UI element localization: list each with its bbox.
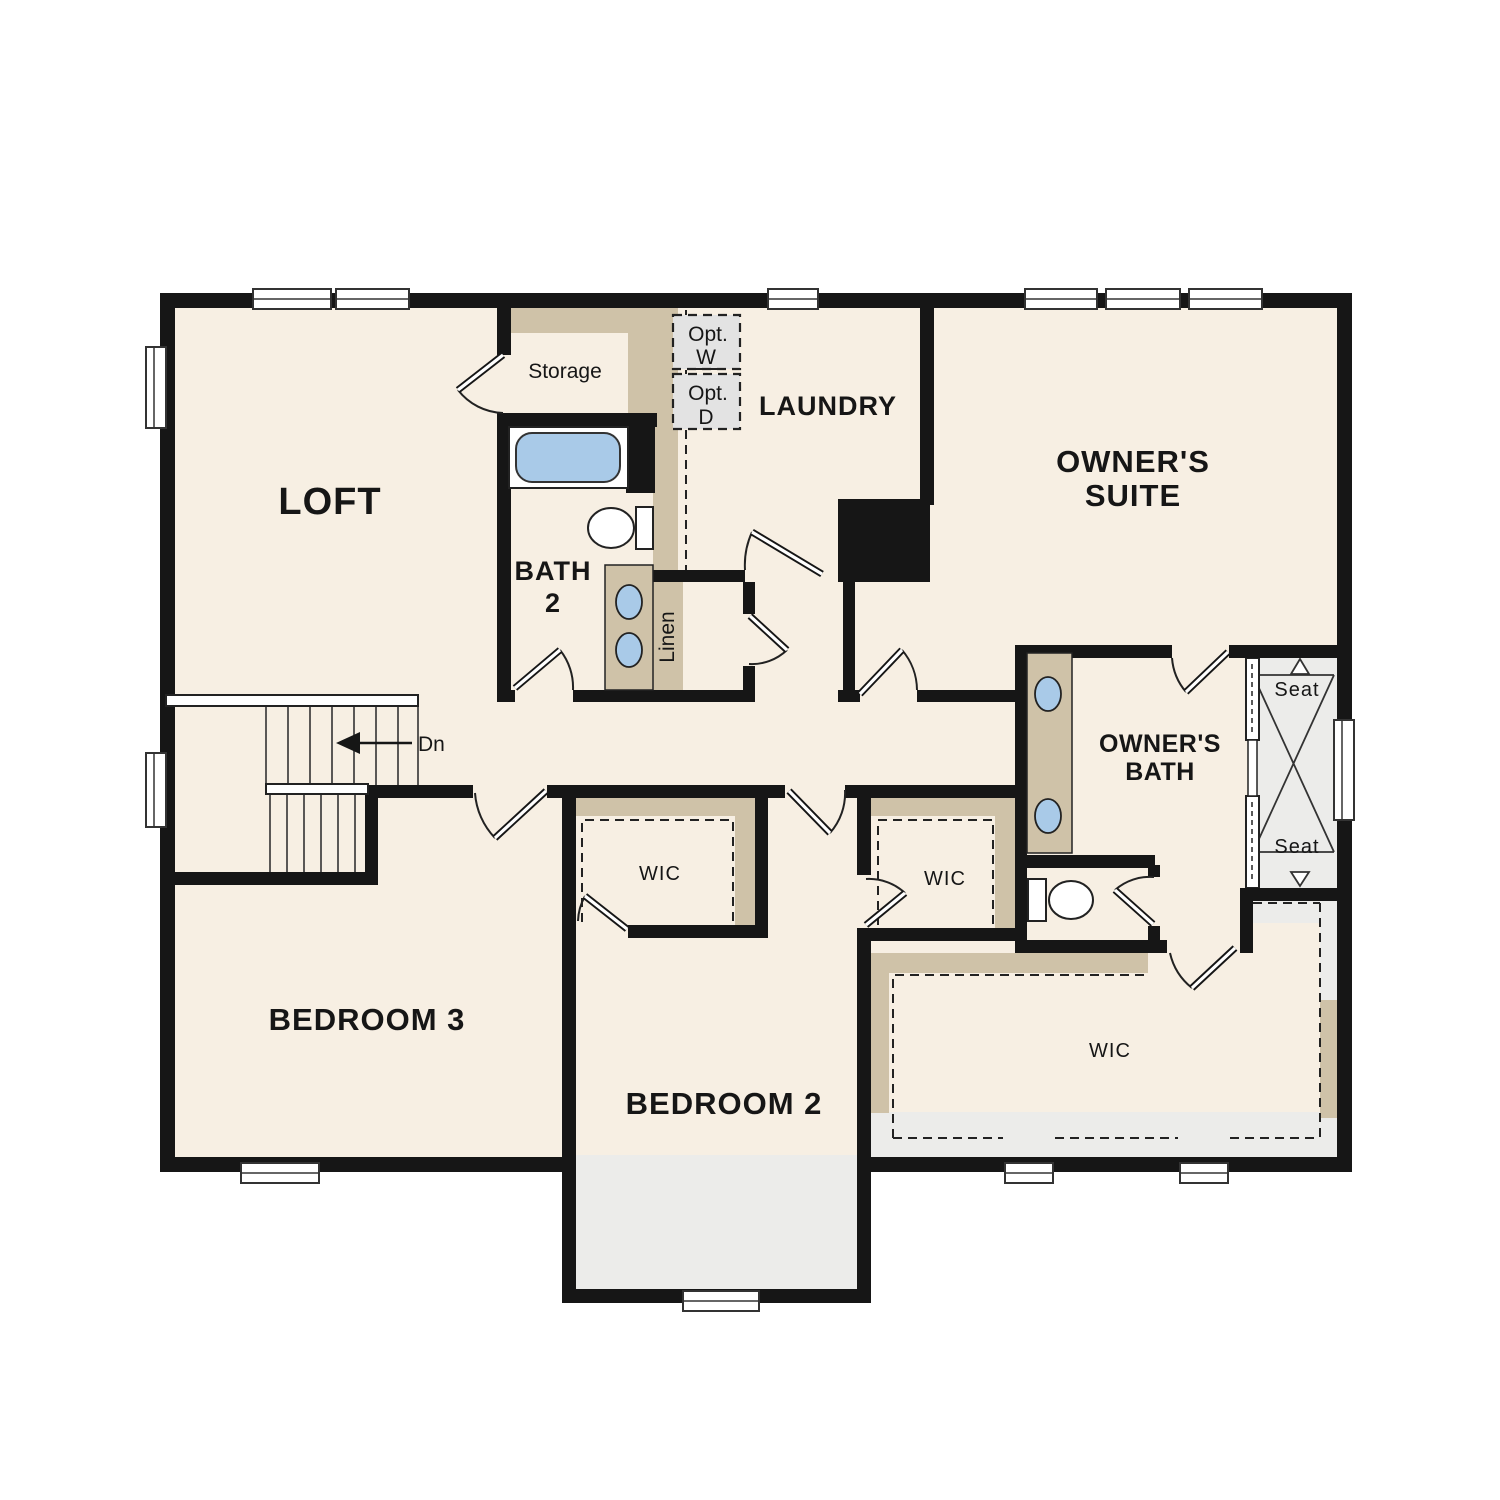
bath2-label-line2: 2 xyxy=(545,588,561,618)
opt-dryer-line2: D xyxy=(698,406,713,429)
laundry-label: LAUNDRY xyxy=(759,391,897,421)
stair-railing-upper xyxy=(166,695,418,706)
bedroom2-label: BEDROOM 2 xyxy=(626,1086,823,1121)
optional-washer-box: Opt. W xyxy=(673,315,740,369)
owners-suite-label-line1: OWNER'S xyxy=(1056,444,1210,479)
floor-plan: Opt. W Opt. D Seat Seat xyxy=(0,0,1500,1500)
shower-seat-top-label: Seat xyxy=(1274,679,1319,701)
opt-washer-line1: Opt. xyxy=(688,323,728,346)
wic-bedroom2-label: WIC xyxy=(924,868,966,890)
sink-icon xyxy=(1035,799,1061,833)
bedroom3-label: BEDROOM 3 xyxy=(269,1002,466,1037)
storage-label: Storage xyxy=(528,360,602,383)
sink-icon xyxy=(1035,677,1061,711)
loft-label: LOFT xyxy=(278,481,381,523)
toilet-tank xyxy=(1028,879,1046,921)
stair-railing-lower xyxy=(266,784,368,794)
wic-bedroom3-label: WIC xyxy=(639,863,681,885)
window xyxy=(1334,720,1354,820)
wic-owners-label: WIC xyxy=(1089,1040,1131,1062)
owners-suite-label-line2: SUITE xyxy=(1085,478,1181,513)
owners-bath-label-line1: OWNER'S xyxy=(1099,730,1221,758)
linen-label: Linen xyxy=(656,611,679,662)
opt-washer-line2: W xyxy=(696,346,716,369)
vanity-counter xyxy=(605,565,653,690)
toilet-tank xyxy=(636,507,653,549)
bath2-label-line1: BATH xyxy=(515,556,592,586)
shower-glass-door xyxy=(1248,740,1257,796)
window xyxy=(146,347,166,428)
sink-icon xyxy=(616,633,642,667)
floor-plan-drawing: Opt. W Opt. D Seat Seat xyxy=(0,0,1500,1500)
stairs-down-label: Dn xyxy=(418,733,445,756)
bathtub-icon xyxy=(516,433,620,482)
optional-dryer-box: Opt. D xyxy=(673,374,740,429)
toilet-icon xyxy=(588,508,634,548)
shower-seat-bottom-label: Seat xyxy=(1274,836,1319,858)
toilet-icon xyxy=(1049,881,1093,919)
owners-bath-label-line2: BATH xyxy=(1125,758,1195,786)
window xyxy=(146,753,166,827)
opt-dryer-line1: Opt. xyxy=(688,382,728,405)
sink-icon xyxy=(616,585,642,619)
